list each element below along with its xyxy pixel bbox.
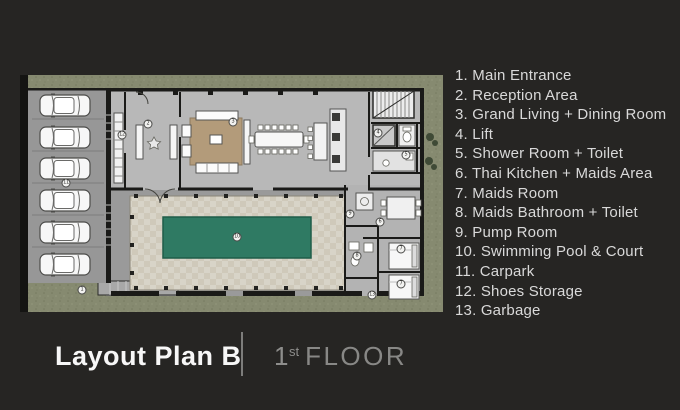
legend-item: 6. Thai Kitchen + Maids Area [455, 164, 670, 184]
floor-plan-graphic [18, 75, 445, 312]
legend-item: 3. Grand Living + Dining Room [455, 105, 670, 125]
room-marker-2: 2 [144, 120, 153, 129]
legend-item: 1. Main Entrance [455, 66, 670, 86]
floor-number: 1 [274, 341, 289, 371]
legend-item: 9. Pump Room [455, 223, 670, 243]
slide: 123456778910111213 1. Main Entrance 2. R… [0, 0, 680, 410]
staircase [373, 91, 414, 118]
legend: 1. Main Entrance 2. Reception Area 3. Gr… [455, 66, 670, 321]
floor-label: 1stFLOOR [274, 341, 407, 372]
floor-word: FLOOR [305, 341, 407, 371]
legend-item: 5. Shower Room + Toilet [455, 144, 670, 164]
room-marker-5: 5 [402, 151, 411, 160]
room-marker-12: 12 [118, 131, 127, 140]
legend-item: 12. Shoes Storage [455, 282, 670, 302]
pump-room [356, 193, 373, 210]
room-marker-13: 13 [368, 291, 377, 300]
shoe-shelves [114, 113, 123, 183]
floor-ordinal: st [289, 344, 299, 359]
room-marker-3: 3 [229, 118, 238, 127]
legend-item: 10. Swimming Pool & Court [455, 242, 670, 262]
room-marker-4: 4 [374, 129, 383, 138]
carpark-wall [106, 88, 111, 283]
legend-item: 13. Garbage [455, 301, 670, 321]
legend-item: 4. Lift [455, 125, 670, 145]
left-boundary-wall [20, 75, 28, 312]
toilet-fixture [399, 125, 415, 146]
room-marker-8: 8 [353, 252, 362, 261]
room-marker-1: 1 [78, 286, 87, 295]
floor-plan: 123456778910111213 [18, 75, 445, 312]
pool-court [130, 194, 345, 290]
room-marker-7: 7 [397, 245, 406, 254]
legend-item: 2. Reception Area [455, 86, 670, 106]
legend-list: 1. Main Entrance 2. Reception Area 3. Gr… [455, 66, 670, 321]
room-marker-6: 6 [376, 218, 385, 227]
title-divider [241, 332, 243, 376]
legend-item: 11. Carpark [455, 262, 670, 282]
plan-title: Layout Plan B [55, 341, 242, 372]
room-marker-7: 7 [397, 280, 406, 289]
legend-item: 8. Maids Bathroom + Toilet [455, 203, 670, 223]
thai-kitchen [381, 197, 421, 219]
room-marker-11: 11 [62, 179, 71, 188]
room-marker-10: 10 [233, 233, 242, 242]
room-marker-9: 9 [346, 210, 355, 219]
legend-item: 7. Maids Room [455, 184, 670, 204]
living-room-furniture [182, 111, 250, 173]
